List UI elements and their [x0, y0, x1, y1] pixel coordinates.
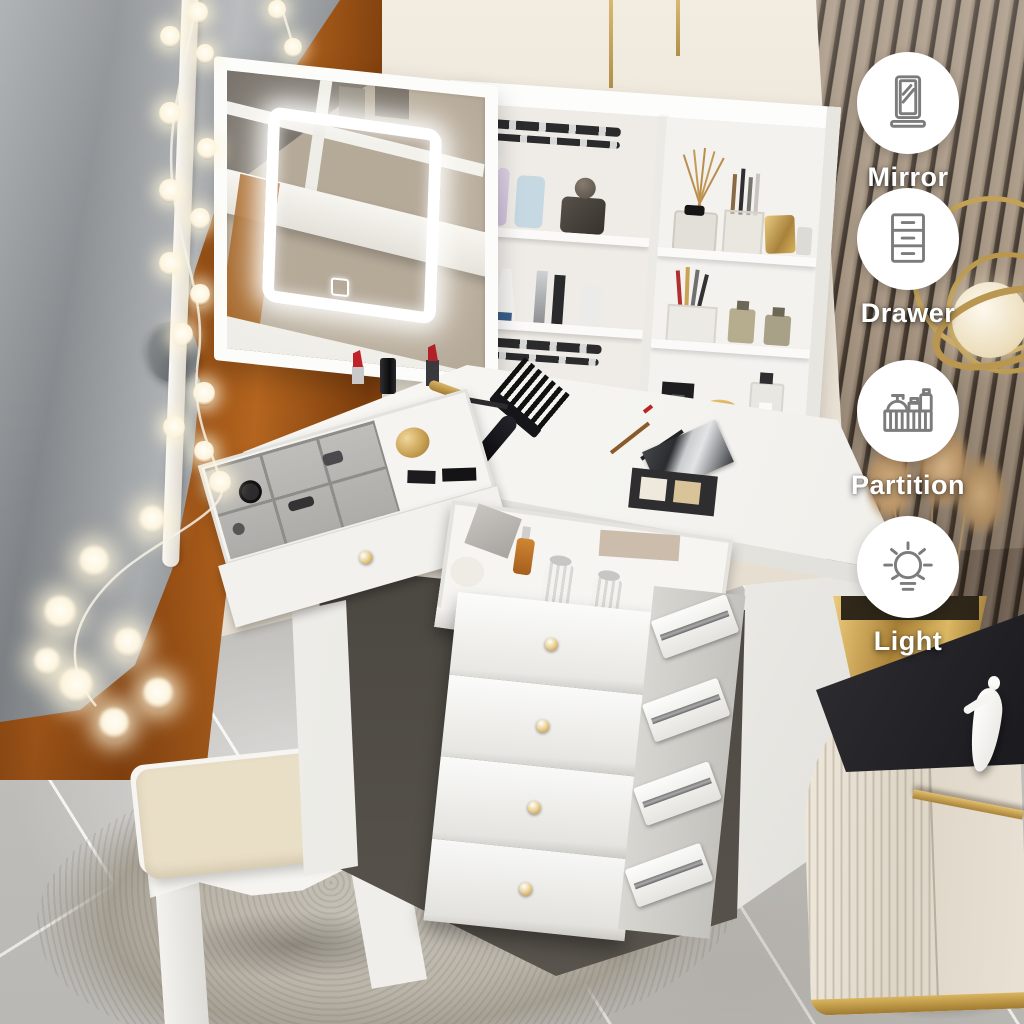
fairy-light-bulb [34, 648, 60, 676]
fairy-light-bulb [163, 416, 185, 440]
fairy-light-bulb [59, 668, 93, 704]
feature-badge-drawer: Drawer [833, 188, 983, 329]
feature-label: Partition [833, 470, 983, 501]
feature-badge-mirror: Mirror [833, 52, 983, 193]
fairy-light-bulb [44, 596, 76, 630]
fairy-light-bulb [193, 382, 215, 406]
fairy-light-bulb [209, 471, 231, 495]
badge-circle [857, 360, 959, 462]
fairy-light-bulb [268, 0, 286, 20]
fairy-light-bulb [190, 284, 210, 306]
fairy-light-bulb [171, 323, 193, 347]
feature-badge-light: Light [833, 516, 983, 657]
partition-icon [877, 380, 939, 442]
fairy-light-bulb [99, 708, 129, 740]
light-icon [877, 536, 939, 598]
fairy-light-bulb [139, 506, 165, 534]
fairy-light-bulb [159, 252, 181, 276]
fairy-light-bulb [159, 179, 181, 203]
fairy-light-bulb [188, 2, 208, 24]
fairy-light-bulb [284, 38, 302, 58]
fairy-light-bulb [190, 208, 210, 230]
fairy-light-bulb [194, 441, 214, 463]
feature-label: Light [833, 626, 983, 657]
fairy-light-bulb [114, 628, 142, 658]
fairy-light-bulb [159, 102, 181, 126]
fairy-light-bulb [197, 138, 217, 160]
vanity-product-photo: Mirror Drawer [0, 0, 1024, 1024]
badge-circle [857, 516, 959, 618]
fairy-light-bulb [79, 546, 109, 578]
fairy-light-bulb [143, 678, 173, 710]
mirror-icon [877, 72, 939, 134]
badge-circle [857, 52, 959, 154]
feature-badge-partition: Partition [833, 360, 983, 501]
drawer-icon [877, 208, 939, 270]
fairy-light-bulb [160, 26, 180, 48]
fairy-light-bulb [196, 44, 214, 64]
feature-label: Drawer [833, 298, 983, 329]
badge-circle [857, 188, 959, 290]
